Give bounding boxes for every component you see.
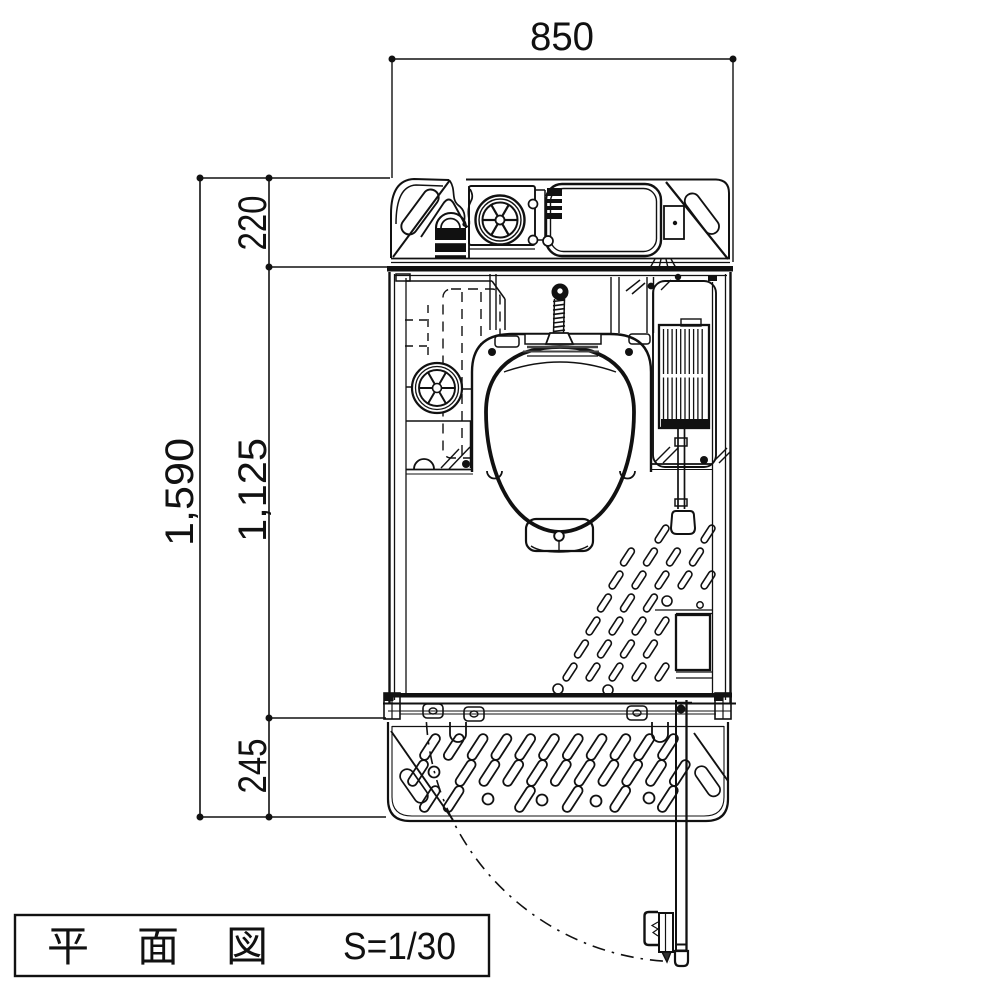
svg-text:1,590: 1,590	[158, 438, 202, 546]
svg-text:1,125: 1,125	[231, 438, 275, 542]
svg-text:面: 面	[137, 923, 179, 970]
svg-text:平: 平	[47, 923, 89, 970]
svg-text:図: 図	[226, 923, 268, 970]
svg-text:850: 850	[530, 15, 594, 59]
svg-text:S=1/30: S=1/30	[343, 926, 456, 968]
svg-text:245: 245	[231, 739, 275, 794]
svg-text:220: 220	[231, 196, 275, 251]
